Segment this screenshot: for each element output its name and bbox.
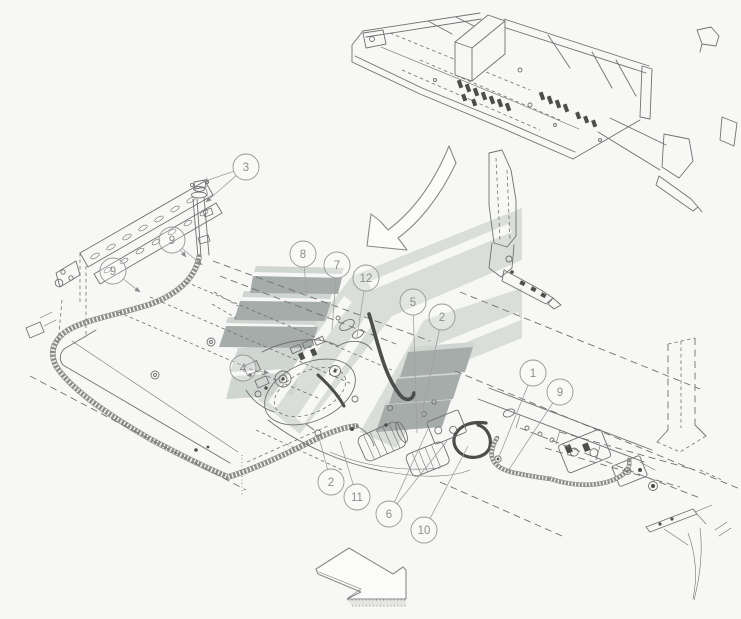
- callout-number: 4: [240, 363, 247, 375]
- callout-number: 9: [110, 266, 116, 278]
- callout-number: 11: [351, 492, 363, 504]
- callout-leader-line: [123, 279, 140, 292]
- curved-direction-arrow: [367, 146, 456, 250]
- hose-guide-tube: [190, 180, 213, 257]
- callout-leader-line: [430, 446, 468, 518]
- tandem-pump-ribbed: [405, 440, 451, 477]
- callout-number: 3: [243, 162, 249, 174]
- callout-9[interactable]: 9: [100, 258, 140, 292]
- lower-right-rod-drawing: [646, 505, 731, 600]
- callout-number: 8: [300, 249, 306, 261]
- parts-diagram-page: 399871252419211610: [0, 0, 741, 619]
- callout-leader-line: [203, 171, 234, 182]
- callout-number: 7: [334, 260, 340, 272]
- callout-11[interactable]: 11: [340, 441, 370, 510]
- callout-number: 6: [386, 509, 392, 521]
- callout-10[interactable]: 10: [411, 446, 468, 543]
- upper-frame-drawing: [352, 13, 737, 212]
- loader-tower-drawing: [489, 150, 561, 309]
- callout-number: 10: [418, 525, 431, 537]
- callout-number: 9: [557, 387, 563, 399]
- callout-9[interactable]: 9: [508, 379, 573, 471]
- callout-number: 5: [410, 297, 416, 309]
- parts-diagram-canvas: 399871252419211610: [0, 0, 741, 619]
- callout-leader-line: [318, 434, 328, 469]
- callout-number: 12: [360, 273, 373, 285]
- rear-post-drawing: [455, 338, 740, 498]
- counterweight-box: [455, 15, 505, 81]
- callout-3[interactable]: 3: [203, 154, 259, 202]
- callout-number: 9: [169, 235, 175, 247]
- callout-2[interactable]: 2: [318, 434, 344, 495]
- callout-number: 1: [530, 368, 536, 380]
- callout-number: 2: [439, 312, 445, 324]
- bottom-direction-arrow: [316, 548, 406, 606]
- callout-number: 2: [328, 477, 334, 489]
- callout-leader-line: [397, 441, 447, 504]
